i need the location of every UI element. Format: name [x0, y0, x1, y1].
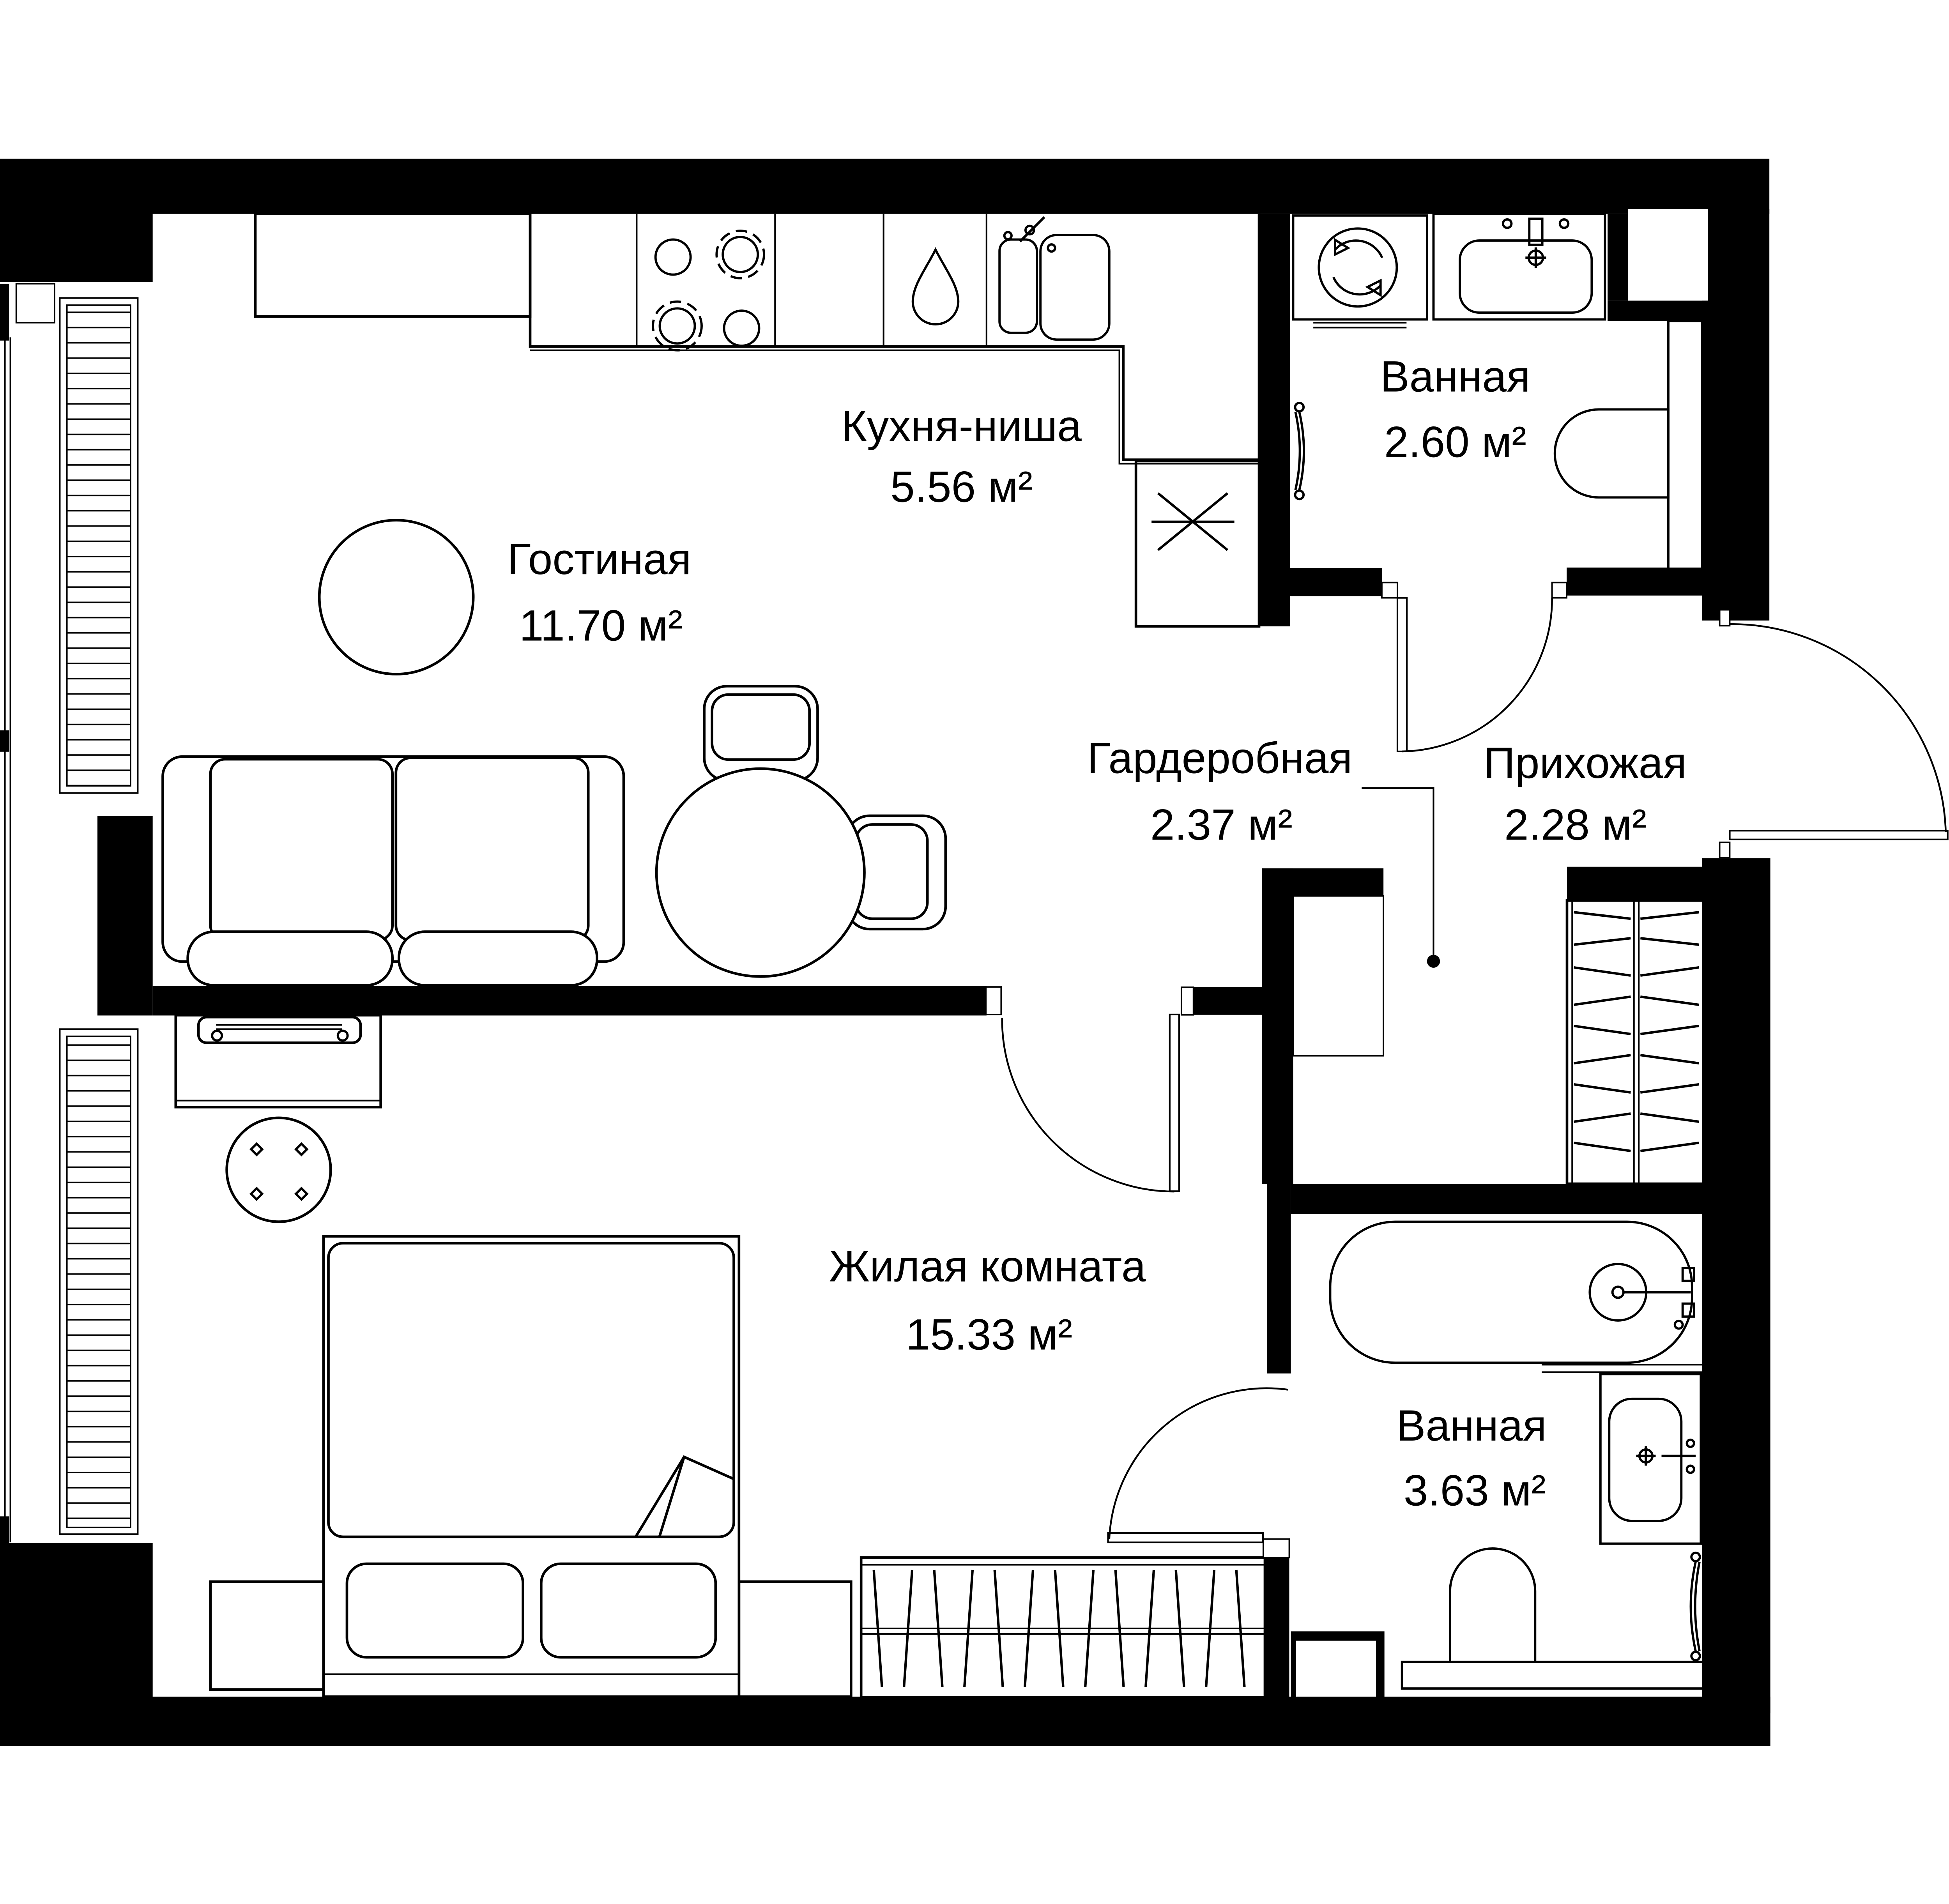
wall-corridor-bottom-band — [1291, 1184, 1703, 1214]
vent-shaft-niche — [1628, 209, 1708, 301]
appliance-space — [1136, 461, 1259, 626]
hall-closet — [1567, 900, 1707, 1184]
kitchen-tall-cabinet — [255, 214, 530, 316]
bath2-shaft-core — [1296, 1641, 1376, 1704]
wall-top-left-block — [0, 159, 153, 282]
kitchen-sink-icon — [999, 217, 1109, 339]
wall-shaft-bottom — [1608, 301, 1708, 321]
door-bedroom — [986, 987, 1194, 1192]
label-wardrobe-name: Гардеробная — [1087, 734, 1352, 783]
washing-machine-icon — [1293, 216, 1427, 328]
label-bedroom-name: Жилая комната — [829, 1242, 1146, 1291]
sofa-backrest-right — [399, 932, 597, 985]
bedroom-furniture — [176, 1015, 1265, 1697]
door-leaf — [1397, 598, 1407, 751]
towel-rail-top — [1295, 403, 1304, 499]
label-bedroom-area: 15.33 м² — [906, 1310, 1073, 1359]
label-bath-top-name: Ванная — [1380, 352, 1530, 401]
label-bath-top-area: 2.60 м² — [1384, 417, 1526, 467]
wall-living-bedroom-partition — [153, 986, 987, 1016]
towel-rail-bottom — [1691, 1553, 1700, 1660]
wall-bath2-left — [1267, 1184, 1291, 1374]
nightstand-right — [739, 1582, 851, 1697]
corridor-niche — [1293, 896, 1384, 1056]
bathroom-bottom-sink — [1601, 1374, 1701, 1543]
dining-chair-top — [704, 686, 818, 781]
bedroom-wardrobe — [861, 1557, 1265, 1697]
nightstand-left — [210, 1582, 324, 1690]
label-kitchen-name: Кухня-ниша — [842, 401, 1082, 451]
wall-right-lower — [1702, 858, 1770, 1713]
door-leaf — [1108, 1533, 1263, 1542]
hook-icon-right — [338, 1031, 348, 1041]
label-bath-bottom-area: 3.63 м² — [1404, 1466, 1546, 1515]
wall-corridor-vertical — [1262, 868, 1293, 1184]
door-leaf — [1730, 831, 1948, 840]
wall-left-tick-1 — [0, 284, 9, 341]
sofa-cushion-right — [396, 758, 588, 941]
door-leaf — [1170, 1015, 1179, 1191]
label-living-name: Гостиная — [507, 534, 691, 583]
toilet-bottom-icon — [1402, 1549, 1703, 1688]
dishwasher-drop-icon — [913, 249, 959, 324]
bathtub-icon — [1330, 1222, 1694, 1363]
wall-kitchen-bath-divider — [1259, 214, 1290, 626]
living-room-furniture — [163, 520, 946, 985]
sofa-backrest-left — [188, 932, 393, 985]
wall-right-top — [1702, 209, 1770, 621]
wall-bath1-bottom-left — [1290, 568, 1382, 596]
window-bottom — [60, 1029, 138, 1534]
wall-bedroom-door-stub — [1194, 987, 1262, 1015]
hook-icon-left — [212, 1031, 222, 1041]
sofa — [163, 757, 624, 985]
bed — [324, 1236, 739, 1697]
label-living-area: 11.70 м² — [519, 601, 683, 650]
floor-plan: Кухня-ниша 5.56 м² Гостиная 11.70 м² Ван… — [0, 0, 1949, 1904]
window-top — [60, 298, 138, 793]
sofa-cushion-left — [210, 759, 393, 940]
wall-top-band — [0, 159, 1769, 214]
leader-dot — [1427, 955, 1440, 968]
wall-shaft-left — [1608, 214, 1628, 301]
wall-hall-closet-top — [1567, 867, 1707, 901]
label-hall-area: 2.28 м² — [1504, 800, 1647, 849]
door-entrance — [1720, 610, 1948, 858]
wall-bottom-band — [0, 1697, 1770, 1746]
door-bathroom-top — [1382, 583, 1567, 751]
door-swing-arc — [1002, 1018, 1174, 1192]
door-swing-arc — [1730, 624, 1946, 832]
door-swing-arc — [1402, 598, 1552, 751]
wall-bottom-left-corner — [0, 1543, 153, 1745]
wall-corridor-niche-top — [1262, 868, 1384, 896]
bathroom-bottom-fixtures — [1330, 1222, 1703, 1689]
stove-icon — [653, 231, 764, 350]
wall-wardrobe-right-column — [1265, 1557, 1289, 1697]
wall-left-mid-chunk — [97, 816, 153, 1016]
dining-table — [656, 769, 864, 976]
decor-circle — [319, 520, 473, 674]
tv-console — [176, 1015, 381, 1107]
radiator-box — [16, 284, 55, 323]
door-bathroom-bottom — [1108, 1388, 1289, 1558]
toilet-icon — [1555, 321, 1702, 571]
bathroom-top-sink — [1434, 214, 1605, 320]
label-wardrobe-area: 2.37 м² — [1150, 800, 1293, 849]
door-swing-arc — [1109, 1388, 1288, 1539]
round-side-table — [227, 1118, 331, 1222]
kitchen-area — [255, 214, 1259, 626]
label-hall-name: Прихожая — [1484, 738, 1687, 787]
label-kitchen-area: 5.56 м² — [890, 462, 1033, 511]
label-bath-bottom-name: Ванная — [1396, 1401, 1546, 1450]
